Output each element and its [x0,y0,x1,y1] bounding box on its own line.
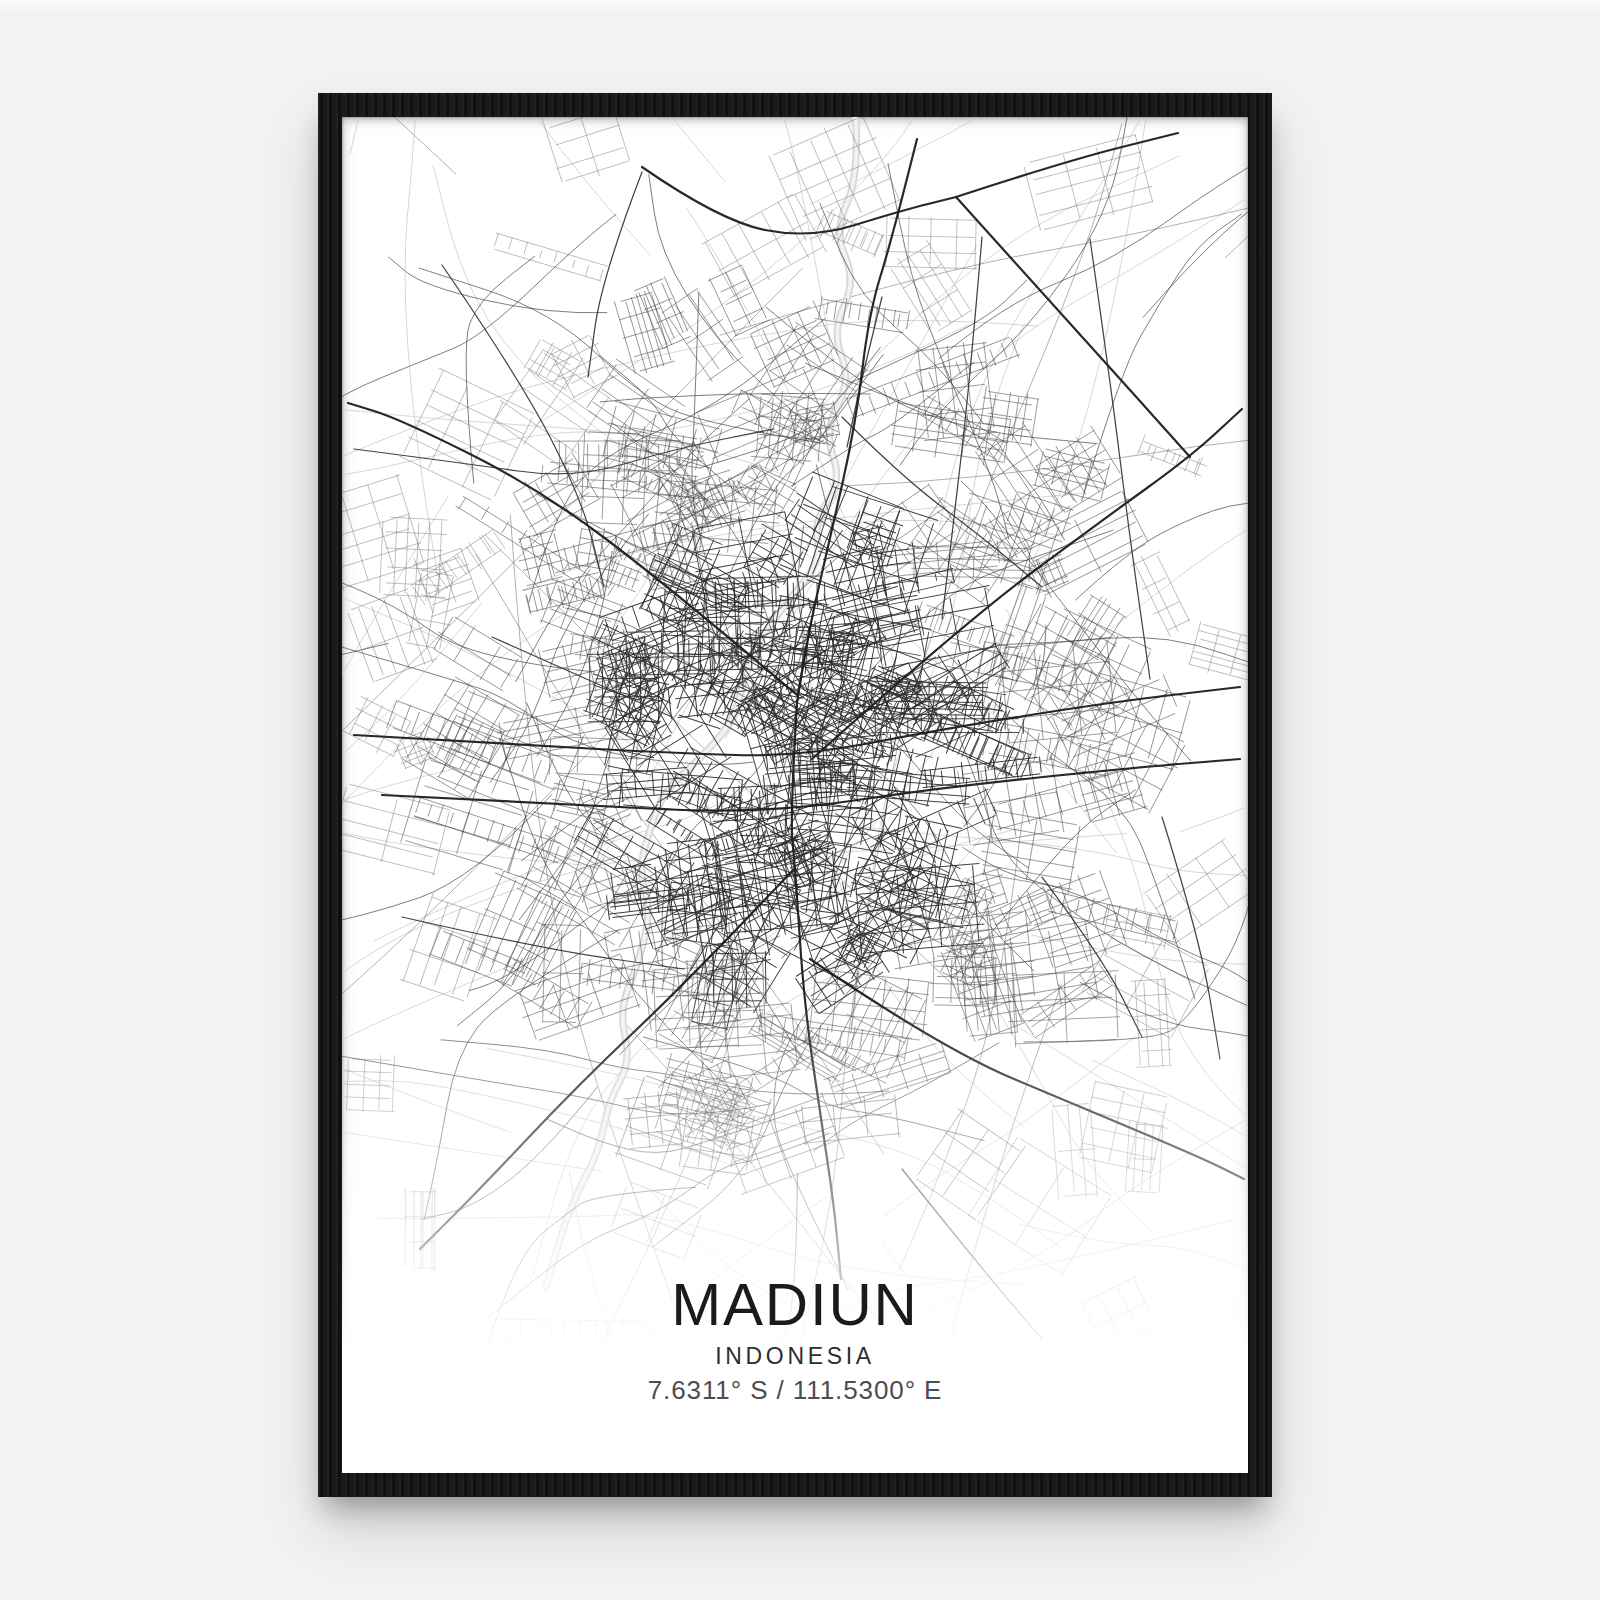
city-map [342,117,1248,1473]
poster-frame: MADIUN INDONESIA 7.6311° S / 111.5300° E [318,93,1272,1497]
page-background: MADIUN INDONESIA 7.6311° S / 111.5300° E [0,0,1600,1600]
poster-country: INDONESIA [342,1345,1248,1368]
map-poster: MADIUN INDONESIA 7.6311° S / 111.5300° E [342,117,1248,1473]
poster-coordinates: 7.6311° S / 111.5300° E [342,1377,1248,1403]
poster-title: MADIUN [342,1275,1248,1335]
